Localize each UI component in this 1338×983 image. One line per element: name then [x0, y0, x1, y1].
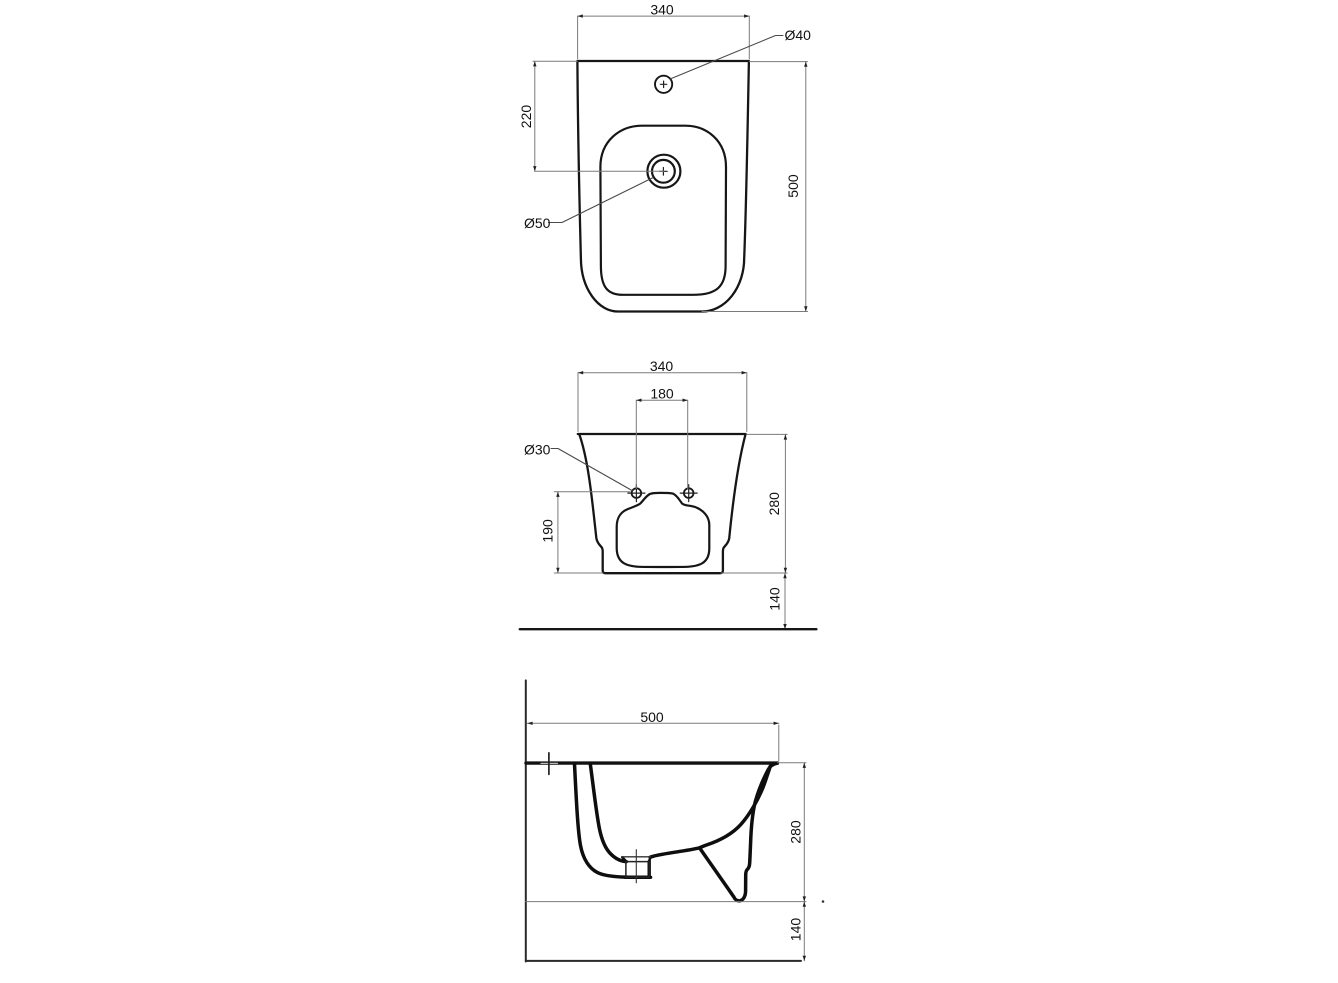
- svg-text:Ø40: Ø40: [785, 27, 812, 43]
- svg-text:220: 220: [518, 105, 534, 129]
- svg-text:340: 340: [650, 1, 674, 17]
- svg-text:500: 500: [785, 174, 801, 198]
- svg-text:280: 280: [766, 492, 782, 516]
- svg-text:140: 140: [767, 587, 783, 611]
- svg-text:340: 340: [650, 358, 674, 374]
- svg-text:180: 180: [650, 385, 674, 401]
- svg-text:190: 190: [540, 519, 556, 543]
- svg-text:280: 280: [788, 820, 804, 844]
- svg-text:500: 500: [640, 709, 664, 725]
- svg-text:Ø30: Ø30: [524, 441, 551, 457]
- svg-text:140: 140: [788, 918, 804, 942]
- svg-text:Ø50: Ø50: [524, 215, 551, 231]
